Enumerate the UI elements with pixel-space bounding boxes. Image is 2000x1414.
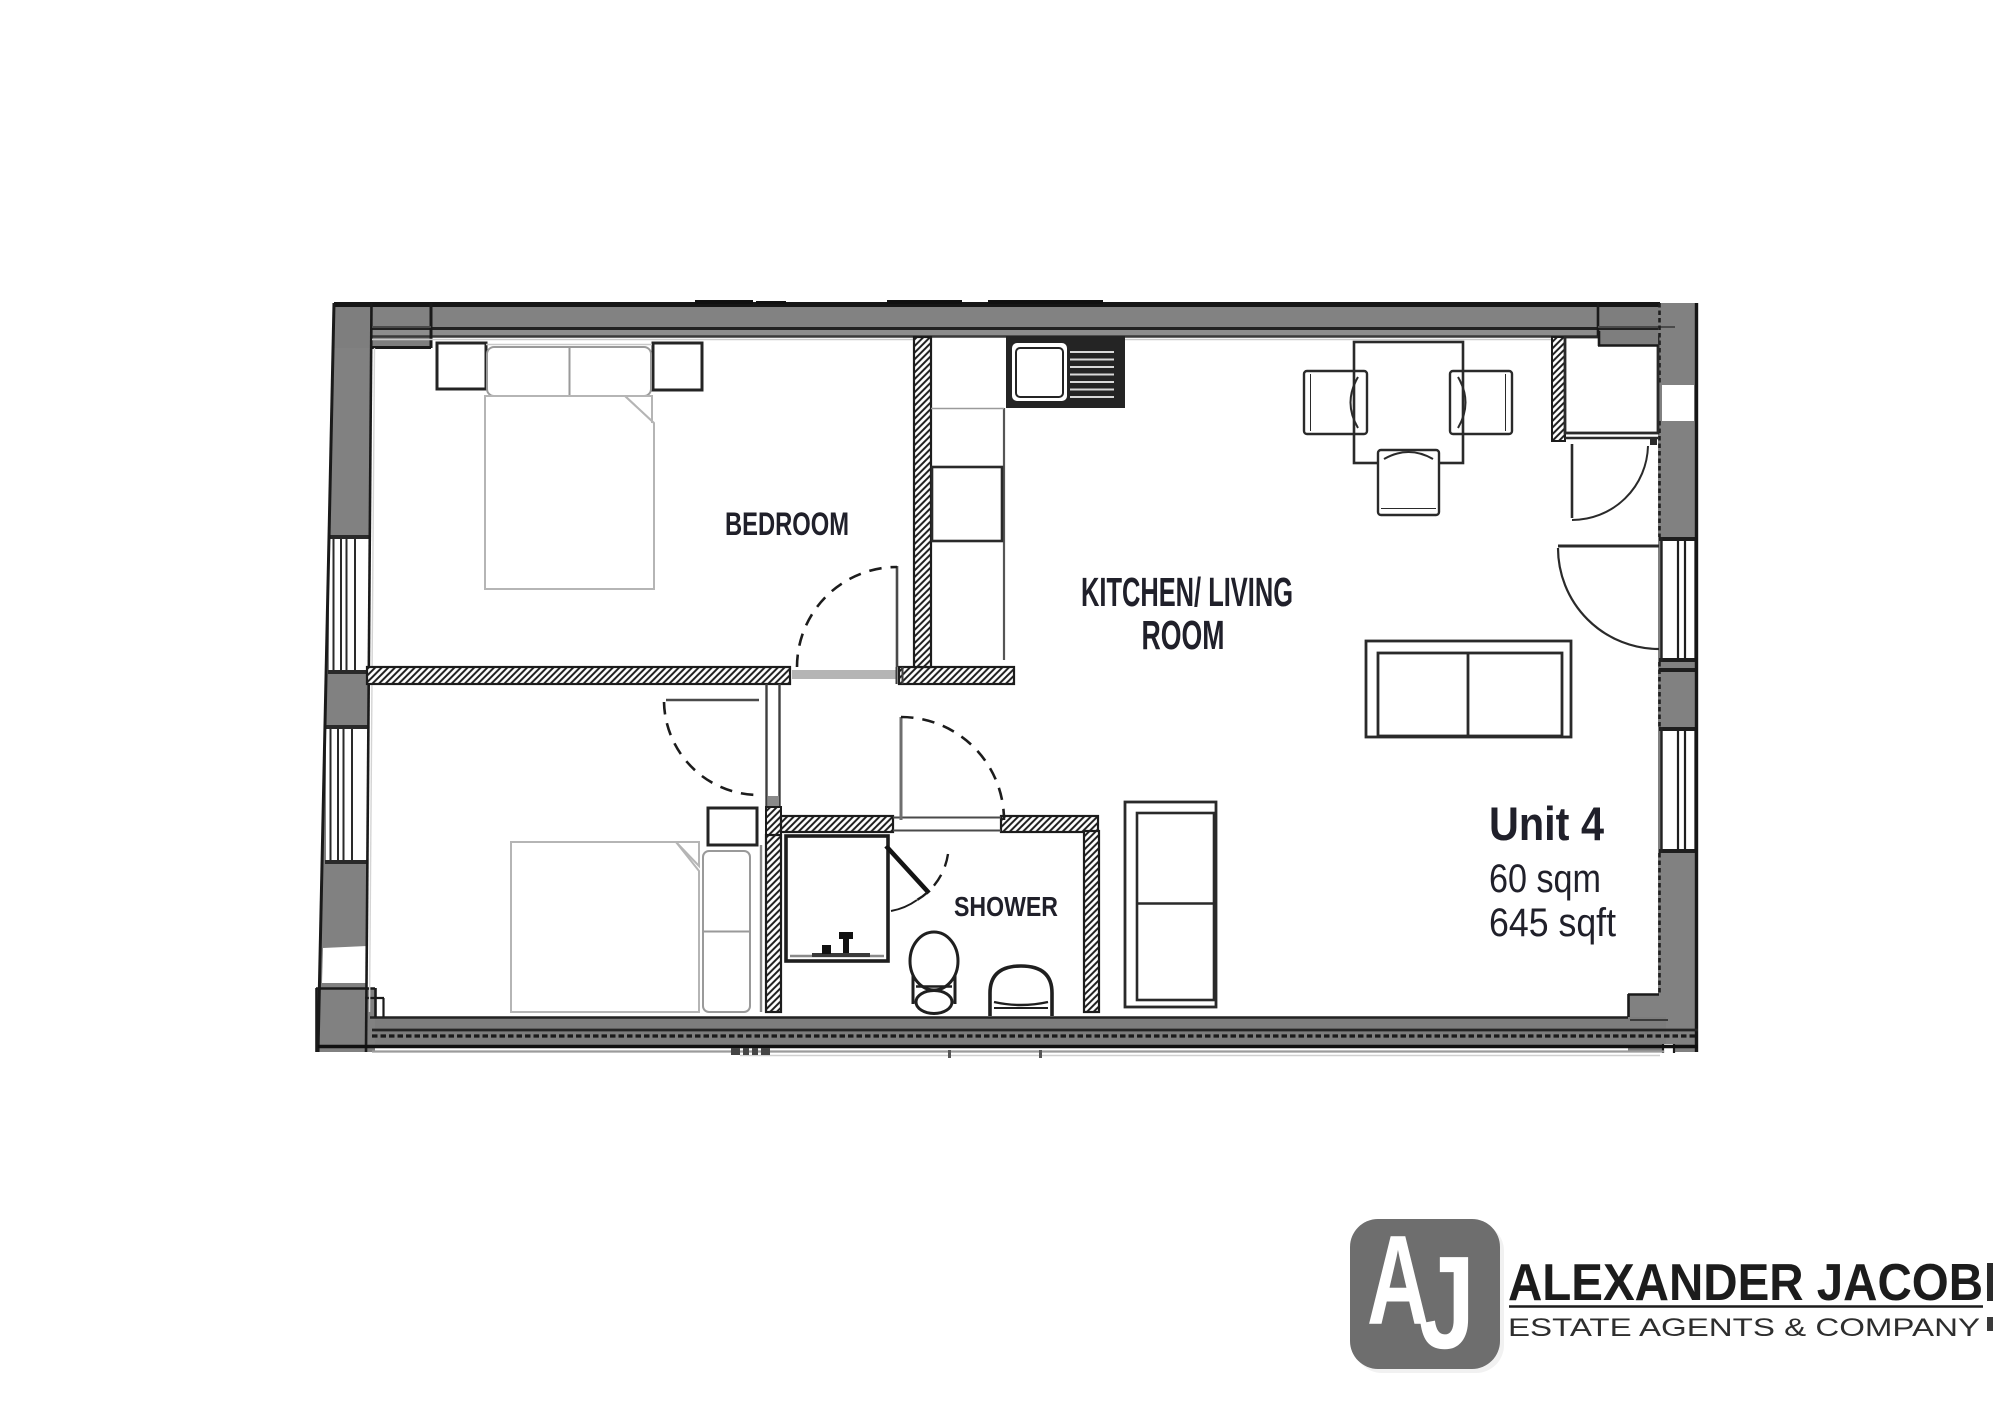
svg-text:ROOM: ROOM [1142, 612, 1225, 658]
svg-text:ALEXANDER JACOB: ALEXANDER JACOB [1508, 1254, 1983, 1312]
svg-text:Unit 4: Unit 4 [1489, 797, 1604, 850]
svg-text:SHOWER: SHOWER [954, 891, 1058, 922]
svg-text:J: J [1419, 1229, 1475, 1376]
svg-text:KITCHEN/ LIVING: KITCHEN/ LIVING [1081, 569, 1293, 615]
svg-text:645 sqft: 645 sqft [1489, 901, 1616, 945]
svg-text:60 sqm: 60 sqm [1489, 857, 1601, 901]
svg-text:ESTATE AGENTS & COMPANY: ESTATE AGENTS & COMPANY [1508, 1314, 1980, 1342]
svg-text:BEDROOM: BEDROOM [725, 506, 849, 542]
